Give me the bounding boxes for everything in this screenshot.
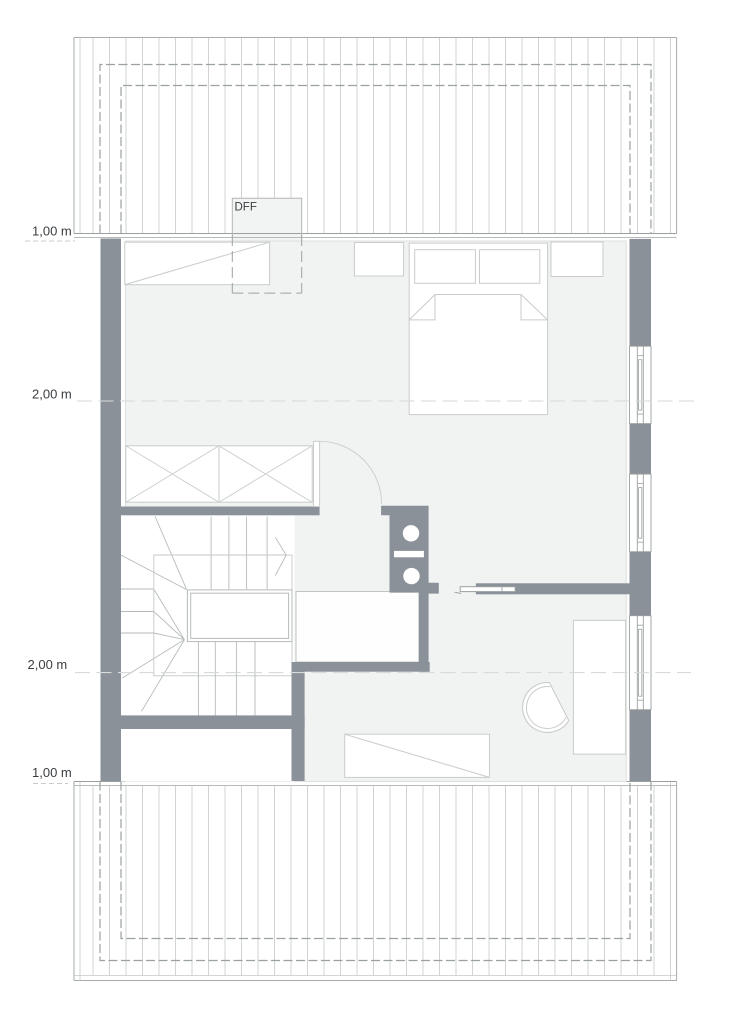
svg-text:DFF: DFF — [235, 202, 257, 214]
svg-text:2,00 m: 2,00 m — [32, 387, 72, 402]
svg-text:2,00 m: 2,00 m — [28, 657, 68, 672]
svg-text:1,00 m: 1,00 m — [32, 765, 72, 780]
svg-text:1,00 m: 1,00 m — [32, 224, 72, 239]
